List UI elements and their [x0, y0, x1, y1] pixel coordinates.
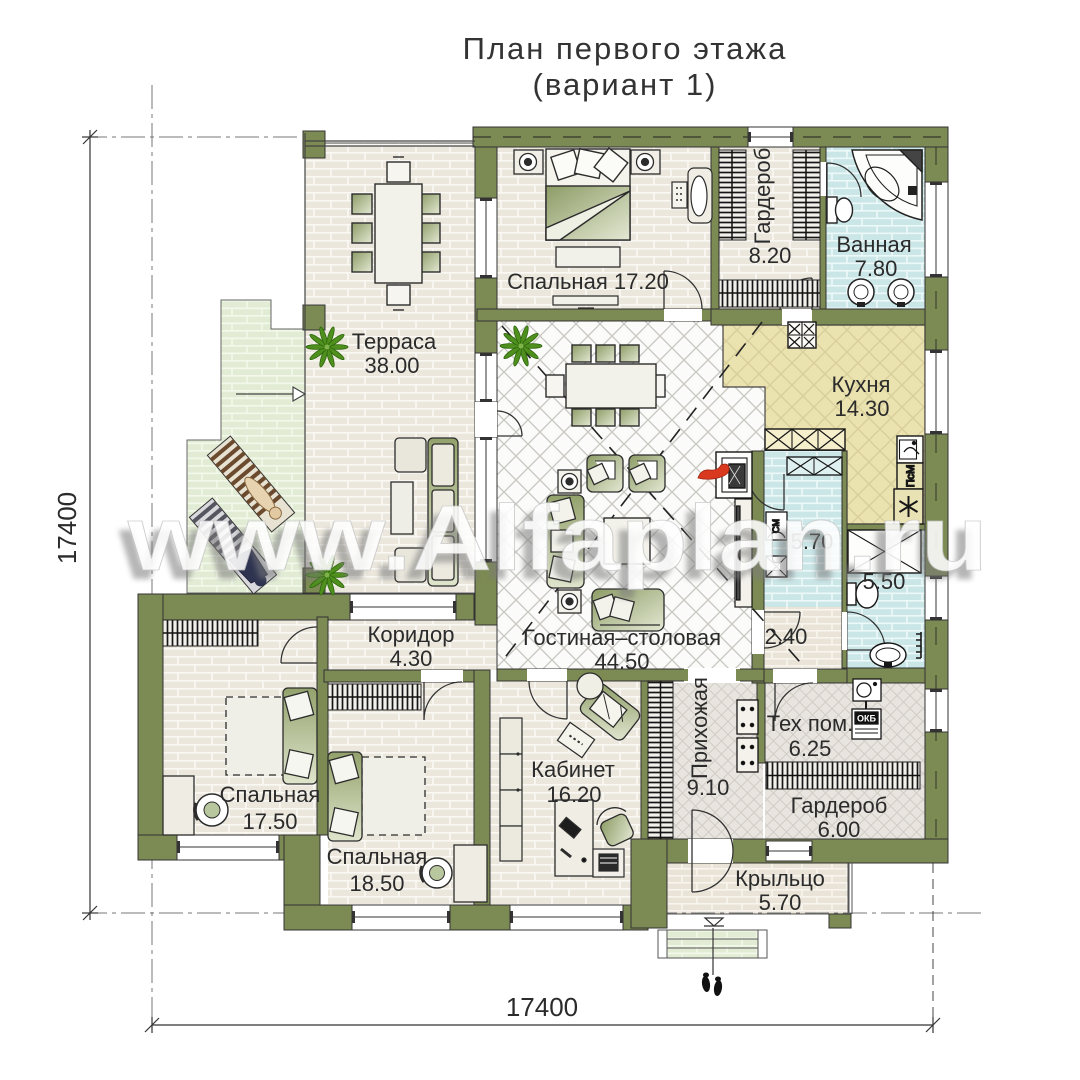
svg-text:17.50: 17.50	[242, 809, 297, 834]
svg-text:Спальная: Спальная	[220, 782, 321, 807]
svg-text:Тех пом.: Тех пом.	[767, 711, 853, 736]
svg-text:Прихожая: Прихожая	[687, 677, 712, 779]
svg-text:16.20: 16.20	[546, 782, 601, 807]
svg-text:4.30: 4.30	[390, 646, 433, 671]
svg-text:(вариант 1): (вариант 1)	[533, 67, 718, 102]
svg-text:18.50: 18.50	[349, 871, 404, 896]
svg-text:5.70: 5.70	[759, 890, 802, 915]
svg-text:www.Alfaplan.ru: www.Alfaplan.ru	[127, 486, 988, 590]
svg-text:Гостиная–столовая: Гостиная–столовая	[523, 625, 721, 650]
svg-text:Спальная: Спальная	[327, 844, 428, 869]
svg-text:38.00: 38.00	[364, 353, 419, 378]
svg-text:Крыльцо: Крыльцо	[735, 866, 825, 891]
svg-text:6.25: 6.25	[789, 736, 832, 761]
svg-text:9.10: 9.10	[687, 775, 730, 800]
svg-text:6.00: 6.00	[818, 817, 861, 842]
svg-text:44.50: 44.50	[594, 649, 649, 674]
svg-text:Кабинет: Кабинет	[531, 757, 615, 782]
svg-text:Коридор: Коридор	[368, 622, 455, 647]
svg-text:17400: 17400	[506, 992, 578, 1022]
svg-text:Гардероб: Гардероб	[750, 148, 775, 245]
svg-text:8.20: 8.20	[749, 243, 792, 268]
svg-text:Спальная 17.20: Спальная 17.20	[507, 269, 669, 294]
svg-text:2.40: 2.40	[765, 624, 808, 649]
svg-text:17400: 17400	[52, 492, 82, 564]
svg-text:Ванная: Ванная	[836, 232, 911, 257]
svg-text:ОКБ: ОКБ	[857, 714, 876, 724]
svg-text:7.80: 7.80	[855, 256, 898, 281]
svg-text:ПсМ: ПсМ	[905, 465, 917, 488]
svg-text:План первого этажа: План первого этажа	[463, 31, 788, 66]
svg-text:Кухня: Кухня	[832, 372, 891, 397]
svg-text:14.30: 14.30	[834, 396, 889, 421]
svg-text:Гардероб: Гардероб	[791, 793, 888, 818]
svg-text:Терраса: Терраса	[352, 329, 437, 354]
